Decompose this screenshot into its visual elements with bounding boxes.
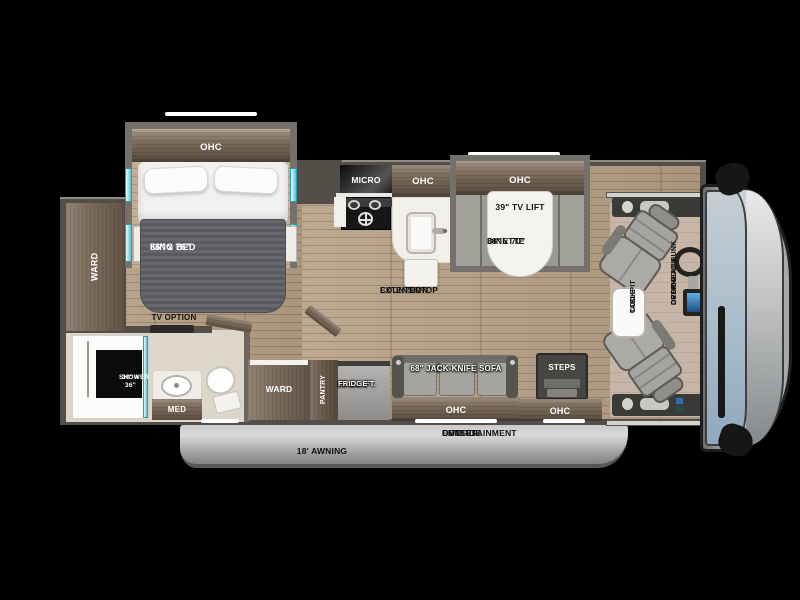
steps-label: STEPS bbox=[538, 363, 586, 372]
entry-steps: STEPS bbox=[536, 353, 588, 400]
pantry-label: PANTRY bbox=[319, 375, 328, 404]
sofa-ohc-label: OHC bbox=[392, 405, 520, 416]
bedroom-wardrobe: WARD bbox=[66, 203, 126, 331]
kitchen-counter-notch bbox=[334, 197, 346, 227]
faucet-handle-icon bbox=[443, 229, 447, 233]
burner-icon bbox=[358, 212, 373, 226]
overhead-bunk-option-label: DROP-DOWN OVERHEAD BUNK OPTION bbox=[636, 252, 704, 358]
sofa-label: 68" JACK-KNIFE SOFA bbox=[398, 364, 514, 373]
oec-line3: CENTER bbox=[442, 428, 478, 438]
window bbox=[125, 168, 132, 202]
king-bed-mattress bbox=[140, 219, 286, 313]
shower-label-pad: 30" x 36" SHOWER bbox=[96, 350, 142, 398]
sofa-armrest-left bbox=[392, 356, 404, 398]
exterior-compartment-marker bbox=[543, 419, 585, 423]
window bbox=[290, 168, 297, 202]
switch-icon bbox=[676, 398, 683, 404]
entry-overhead-cabinet: OHC bbox=[518, 399, 602, 421]
pantry: PANTRY bbox=[310, 360, 338, 420]
micro-label: MICRO bbox=[340, 175, 392, 185]
windshield-pillar-trim bbox=[718, 306, 725, 418]
bedroom-ward-label: WARD bbox=[89, 253, 101, 281]
front-cap-band bbox=[746, 190, 784, 446]
step-tread bbox=[547, 389, 577, 397]
vanity-faucet-icon bbox=[174, 383, 179, 388]
awning-label: 18' AWNING bbox=[262, 446, 382, 456]
burner-icon bbox=[348, 200, 360, 210]
dinette-ohc-label: OHC bbox=[456, 175, 584, 186]
galley-ward-label: WARD bbox=[248, 384, 310, 394]
medicine-cabinet: MED bbox=[152, 399, 202, 420]
bedroom-slide-marker bbox=[165, 112, 257, 116]
kitchen-sink bbox=[406, 212, 436, 254]
bedroom-ohc-label: OHC bbox=[132, 142, 290, 153]
pillow-right bbox=[213, 165, 278, 194]
refrigerator bbox=[338, 361, 390, 420]
step-tread bbox=[544, 379, 580, 388]
med-label: MED bbox=[152, 405, 202, 414]
pillow-left bbox=[143, 165, 208, 194]
awning-band bbox=[180, 425, 628, 468]
king-bed-text: KING BED bbox=[150, 242, 196, 253]
countertop-extension-table bbox=[404, 259, 438, 287]
dinette-bench-left bbox=[456, 195, 482, 266]
bedroom-overhead-cabinet: OHC bbox=[132, 130, 290, 162]
sofa-overhead-cabinet: OHC bbox=[392, 398, 520, 421]
windshield bbox=[705, 190, 747, 446]
kitchen-ohc-label: OHC bbox=[392, 176, 454, 187]
dinette-text: DINETTE bbox=[487, 236, 525, 246]
dinette-bench-right bbox=[558, 195, 584, 266]
fridge-text: FRIDGE bbox=[338, 380, 368, 389]
tv-option-label: TV OPTION bbox=[136, 313, 212, 322]
bunk-line3: OPTION bbox=[670, 277, 679, 305]
countertop-line2: EXTENSION bbox=[380, 286, 428, 295]
entry-ohc-label: OHC bbox=[518, 406, 602, 417]
burner-icon bbox=[369, 200, 381, 210]
speaker-icon bbox=[622, 398, 633, 410]
switch-icon bbox=[676, 406, 683, 412]
tv-icon bbox=[150, 325, 194, 333]
microwave: MICRO bbox=[340, 165, 392, 196]
tv-lift-label: 39" TV LIFT bbox=[487, 202, 553, 212]
shower-door bbox=[87, 341, 89, 397]
cooktop bbox=[341, 197, 391, 230]
cab-beltline-bottom bbox=[606, 420, 708, 426]
shower-text: SHOWER bbox=[119, 374, 149, 382]
exterior-compartment-marker bbox=[415, 419, 497, 423]
window bbox=[125, 224, 132, 262]
exterior-compartment-marker bbox=[201, 419, 239, 423]
sofa-armrest-right bbox=[506, 356, 518, 398]
kitchen-overhead-cabinet: OHC bbox=[392, 165, 454, 197]
dinette-overhead-cabinet: OHC bbox=[456, 161, 584, 195]
galley-wardrobe-counter bbox=[250, 360, 308, 365]
rv-floorplan: 18' AWNING OUTSIDE ENTERTAINMENT CENTER … bbox=[0, 0, 800, 600]
